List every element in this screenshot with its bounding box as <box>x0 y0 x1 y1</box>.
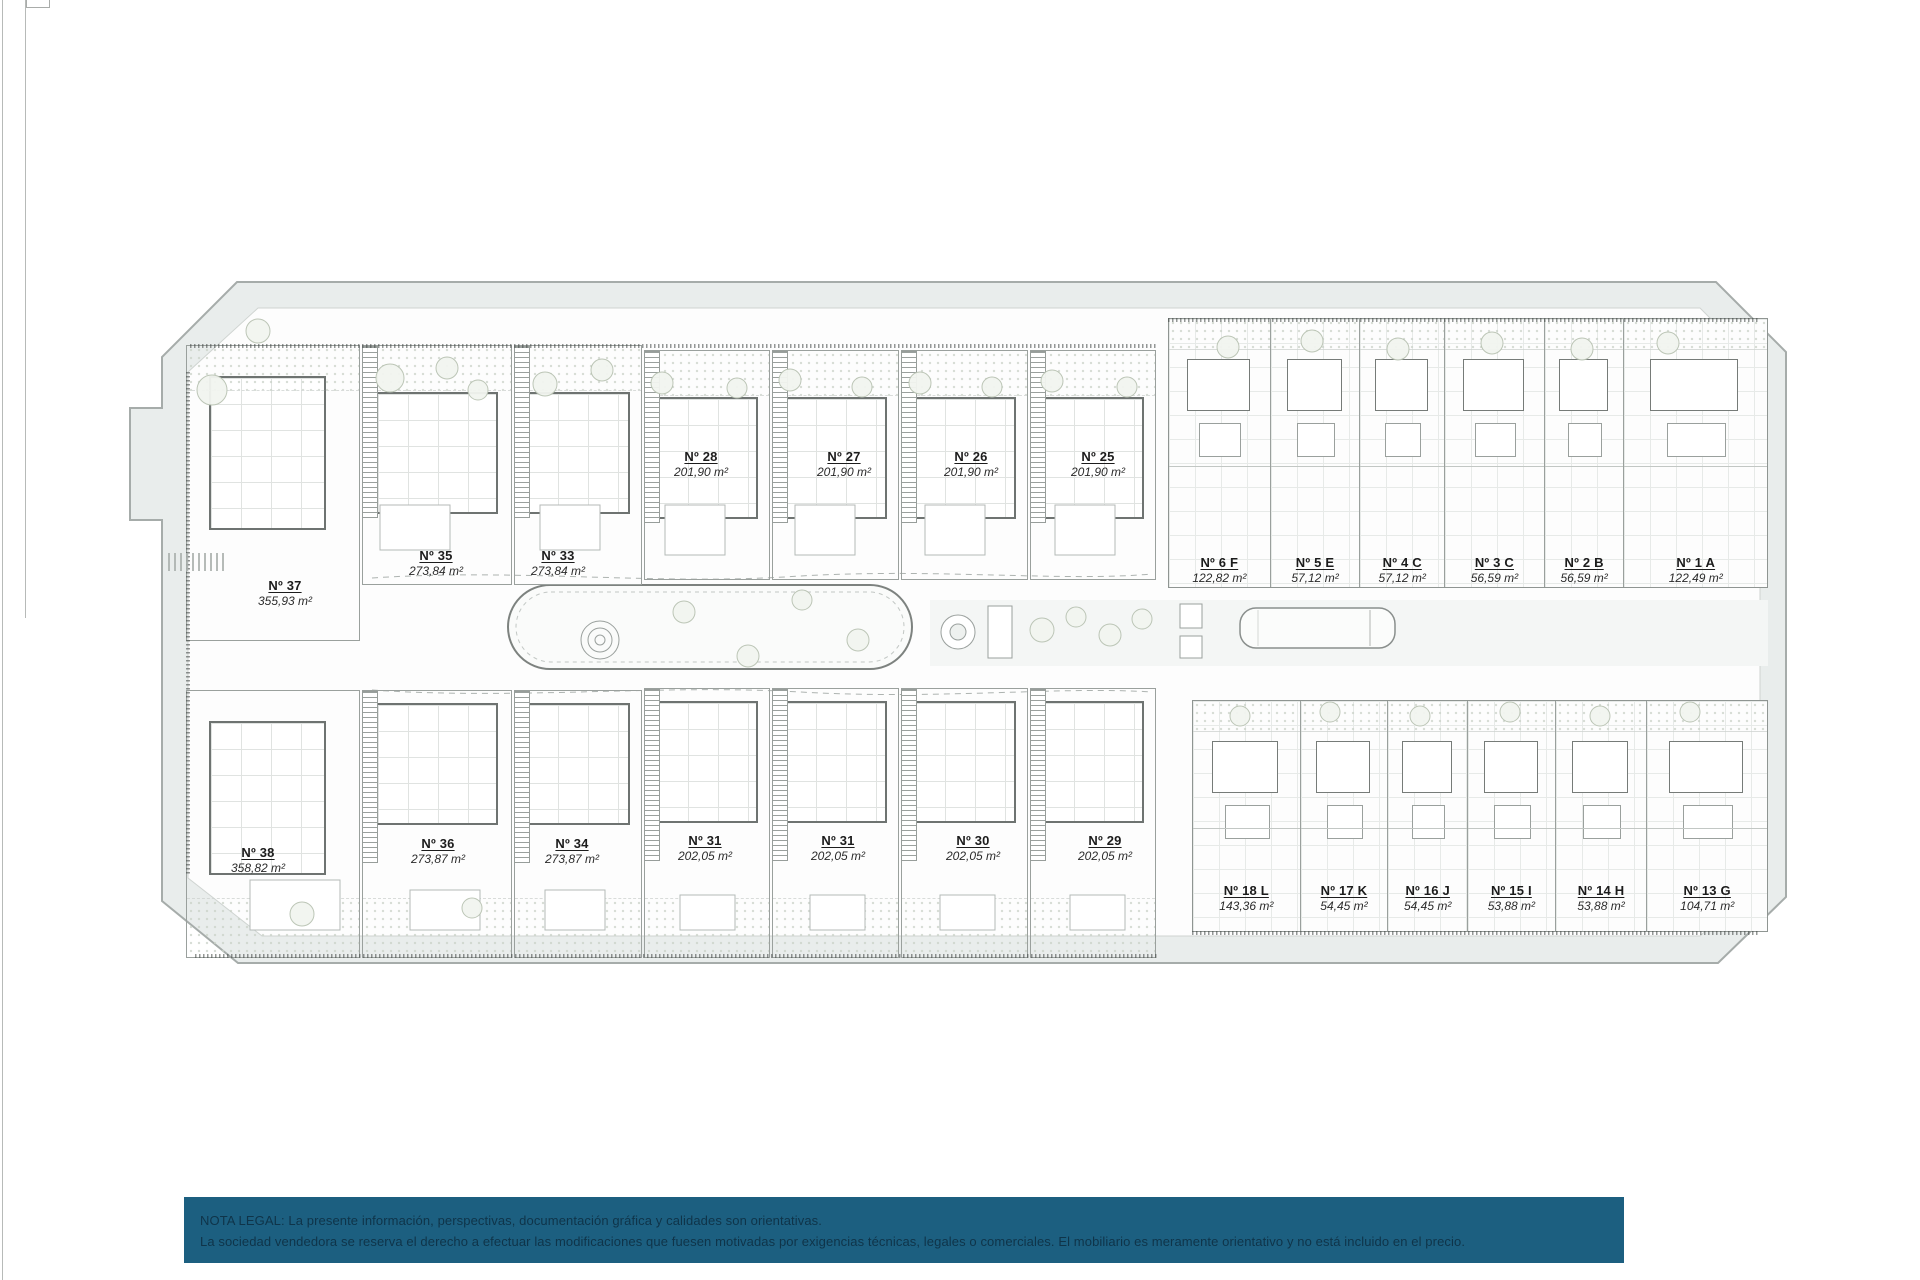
unit-area: 56,59 m² <box>1545 571 1624 585</box>
unit-area: 54,45 m² <box>1388 899 1467 913</box>
unit-label: Nº 2 B56,59 m² <box>1545 555 1624 585</box>
unit-label: Nº 5 E57,12 m² <box>1271 555 1360 585</box>
room-outline <box>1225 805 1270 839</box>
unit-number: Nº 16 J <box>1388 883 1467 898</box>
unit-number: Nº 6 F <box>1169 555 1270 570</box>
unit-area: 201,90 m² <box>674 465 728 479</box>
unit-area: 57,12 m² <box>1271 571 1360 585</box>
unit-number: Nº 2 B <box>1545 555 1624 570</box>
room-outline <box>1583 805 1621 839</box>
unit-area: 201,90 m² <box>1071 465 1125 479</box>
tree-icon <box>1099 624 1121 646</box>
stairs <box>772 351 788 523</box>
unit-number: Nº 13 G <box>1647 883 1767 898</box>
villa-plot-38 <box>186 690 360 958</box>
apartment-unit-3C: Nº 3 C56,59 m² <box>1445 319 1545 587</box>
pool-area <box>508 585 912 669</box>
roundabout-icon <box>941 615 975 649</box>
legal-note-line-1: NOTA LEGAL: La presente información, per… <box>200 1210 1624 1231</box>
villa-plot-36 <box>362 690 512 958</box>
room-outline <box>1667 423 1726 457</box>
apartment-unit-17K: Nº 17 K54,45 m² <box>1301 701 1389 931</box>
unit-label: Nº 31202,05 m² <box>678 833 732 863</box>
unit-label: Nº 30202,05 m² <box>946 833 1000 863</box>
unit-label: Nº 18 L143,36 m² <box>1193 883 1300 913</box>
unit-number: Nº 14 H <box>1556 883 1647 898</box>
unit-number: Nº 36 <box>411 836 465 851</box>
room-outline <box>1484 741 1538 793</box>
tree-icon <box>737 645 759 667</box>
unit-label: Nº 36273,87 m² <box>411 836 465 866</box>
unit-label: Nº 38358,82 m² <box>231 845 285 875</box>
stairs <box>514 346 530 518</box>
unit-area: 57,12 m² <box>1360 571 1444 585</box>
unit-number: Nº 30 <box>946 833 1000 848</box>
tree-icon <box>1066 607 1086 627</box>
stairs <box>362 691 378 863</box>
unit-area: 273,84 m² <box>409 564 463 578</box>
unit-number: Nº 38 <box>231 845 285 860</box>
stairs <box>644 351 660 523</box>
room-outline <box>1199 423 1241 457</box>
driveway-area <box>930 600 1768 666</box>
room-outline <box>1297 423 1334 457</box>
page: Nº 6 F122,82 m² Nº 5 E57,12 m² Nº 4 C57,… <box>0 0 1920 1280</box>
stairs <box>362 346 378 518</box>
unit-area: 56,59 m² <box>1445 571 1544 585</box>
stairs <box>901 689 917 861</box>
unit-area: 202,05 m² <box>678 849 732 863</box>
unit-area: 201,90 m² <box>944 465 998 479</box>
unit-number: Nº 25 <box>1071 449 1125 464</box>
stairs <box>772 689 788 861</box>
legal-note-line-2: La sociedad vendedora se reserva el dere… <box>200 1231 1624 1252</box>
unit-area: 273,87 m² <box>411 852 465 866</box>
apartment-unit-5E: Nº 5 E57,12 m² <box>1271 319 1361 587</box>
tree-icon <box>1030 618 1054 642</box>
room-outline <box>1463 359 1524 411</box>
villa-plot-31b <box>772 688 899 958</box>
unit-area: 104,71 m² <box>1647 899 1767 913</box>
spiral-feature-icon <box>581 621 619 659</box>
unit-area: 273,87 m² <box>545 852 599 866</box>
unit-area: 54,45 m² <box>1301 899 1388 913</box>
unit-area: 53,88 m² <box>1556 899 1647 913</box>
stairs <box>901 351 917 523</box>
unit-area: 53,88 m² <box>1468 899 1555 913</box>
unit-number: Nº 33 <box>531 548 585 563</box>
unit-label: Nº 33273,84 m² <box>531 548 585 578</box>
apartment-unit-16J: Nº 16 J54,45 m² <box>1388 701 1468 931</box>
apartment-block-top: Nº 6 F122,82 m² Nº 5 E57,12 m² Nº 4 C57,… <box>1168 318 1768 588</box>
tree-icon <box>847 629 869 651</box>
room-outline <box>1494 805 1531 839</box>
unit-number: Nº 4 C <box>1360 555 1444 570</box>
room-outline <box>1669 741 1743 793</box>
unit-label: Nº 35273,84 m² <box>409 548 463 578</box>
villa-plot-31a <box>644 688 770 958</box>
room-outline <box>1568 423 1601 457</box>
unit-label: Nº 27201,90 m² <box>817 449 871 479</box>
unit-number: Nº 1 A <box>1624 555 1767 570</box>
unit-area: 143,36 m² <box>1193 899 1300 913</box>
unit-label: Nº 28201,90 m² <box>674 449 728 479</box>
unit-label: Nº 26201,90 m² <box>944 449 998 479</box>
tree-icon <box>246 319 270 343</box>
room-outline <box>1559 359 1608 411</box>
unit-area: 273,84 m² <box>531 564 585 578</box>
unit-number: Nº 37 <box>258 578 312 593</box>
room-outline <box>1650 359 1738 411</box>
villa-plot-34 <box>514 690 642 958</box>
unit-area: 122,49 m² <box>1624 571 1767 585</box>
courtyard-paths <box>372 573 1152 694</box>
unit-label: Nº 29202,05 m² <box>1078 833 1132 863</box>
unit-number: Nº 15 I <box>1468 883 1555 898</box>
unit-area: 358,82 m² <box>231 861 285 875</box>
unit-area: 202,05 m² <box>1078 849 1132 863</box>
stairs <box>1030 351 1046 523</box>
unit-label: Nº 6 F122,82 m² <box>1169 555 1270 585</box>
unit-area: 202,05 m² <box>811 849 865 863</box>
apartment-unit-1A: Nº 1 A122,49 m² <box>1624 319 1767 587</box>
page-border-tab <box>26 0 50 8</box>
unit-number: Nº 26 <box>944 449 998 464</box>
unit-number: Nº 29 <box>1078 833 1132 848</box>
apartment-unit-2B: Nº 2 B56,59 m² <box>1545 319 1625 587</box>
unit-number: Nº 28 <box>674 449 728 464</box>
unit-number: Nº 17 K <box>1301 883 1388 898</box>
unit-number: Nº 27 <box>817 449 871 464</box>
unit-area: 122,82 m² <box>1169 571 1270 585</box>
room-outline <box>1572 741 1628 793</box>
unit-area: 202,05 m² <box>946 849 1000 863</box>
room-outline <box>1683 805 1733 839</box>
unit-label: Nº 37355,93 m² <box>258 578 312 608</box>
unit-number: Nº 3 C <box>1445 555 1544 570</box>
stairs <box>644 689 660 861</box>
apartment-unit-14H: Nº 14 H53,88 m² <box>1556 701 1648 931</box>
legal-note-banner: NOTA LEGAL: La presente información, per… <box>184 1197 1624 1263</box>
unit-area: 355,93 m² <box>258 594 312 608</box>
room-outline <box>1212 741 1278 793</box>
unit-label: Nº 17 K54,45 m² <box>1301 883 1388 913</box>
tree-icon <box>673 601 695 623</box>
unit-label: Nº 14 H53,88 m² <box>1556 883 1647 913</box>
unit-number: Nº 34 <box>545 836 599 851</box>
room-outline <box>1187 359 1249 411</box>
room-outline <box>1316 741 1370 793</box>
apartment-unit-4C: Nº 4 C57,12 m² <box>1360 319 1445 587</box>
vehicle-icon <box>1240 608 1395 648</box>
room-outline <box>1475 423 1516 457</box>
villa-plot-30 <box>901 688 1028 958</box>
room-outline <box>1385 423 1420 457</box>
unit-label: Nº 25201,90 m² <box>1071 449 1125 479</box>
unit-label: Nº 31202,05 m² <box>811 833 865 863</box>
unit-label: Nº 1 A122,49 m² <box>1624 555 1767 585</box>
unit-label: Nº 13 G104,71 m² <box>1647 883 1767 913</box>
unit-area: 201,90 m² <box>817 465 871 479</box>
unit-label: Nº 15 I53,88 m² <box>1468 883 1555 913</box>
unit-number: Nº 35 <box>409 548 463 563</box>
page-border-line <box>2 0 3 1280</box>
tree-icon <box>792 590 812 610</box>
room-outline <box>1287 359 1342 411</box>
unit-label: Nº 4 C57,12 m² <box>1360 555 1444 585</box>
apartment-block-bottom: Nº 18 L143,36 m² Nº 17 K54,45 m² Nº 16 J… <box>1192 700 1768 932</box>
unit-label: Nº 16 J54,45 m² <box>1388 883 1467 913</box>
room-outline <box>1375 359 1427 411</box>
page-border-line <box>25 0 26 618</box>
room-outline <box>1402 741 1451 793</box>
unit-label: Nº 34273,87 m² <box>545 836 599 866</box>
tree-icon <box>1132 609 1152 629</box>
apartment-unit-6F: Nº 6 F122,82 m² <box>1169 319 1271 587</box>
villa-plot-29 <box>1030 688 1156 958</box>
stairs <box>1030 689 1046 861</box>
room-outline <box>1412 805 1445 839</box>
unit-number: Nº 18 L <box>1193 883 1300 898</box>
apartment-unit-13G: Nº 13 G104,71 m² <box>1647 701 1767 931</box>
apartment-unit-18L: Nº 18 L143,36 m² <box>1193 701 1301 931</box>
unit-number: Nº 5 E <box>1271 555 1360 570</box>
stairs <box>514 691 530 863</box>
unit-number: Nº 31 <box>678 833 732 848</box>
room-outline <box>1327 805 1364 839</box>
apartment-unit-15I: Nº 15 I53,88 m² <box>1468 701 1556 931</box>
unit-label: Nº 3 C56,59 m² <box>1445 555 1544 585</box>
unit-number: Nº 31 <box>811 833 865 848</box>
